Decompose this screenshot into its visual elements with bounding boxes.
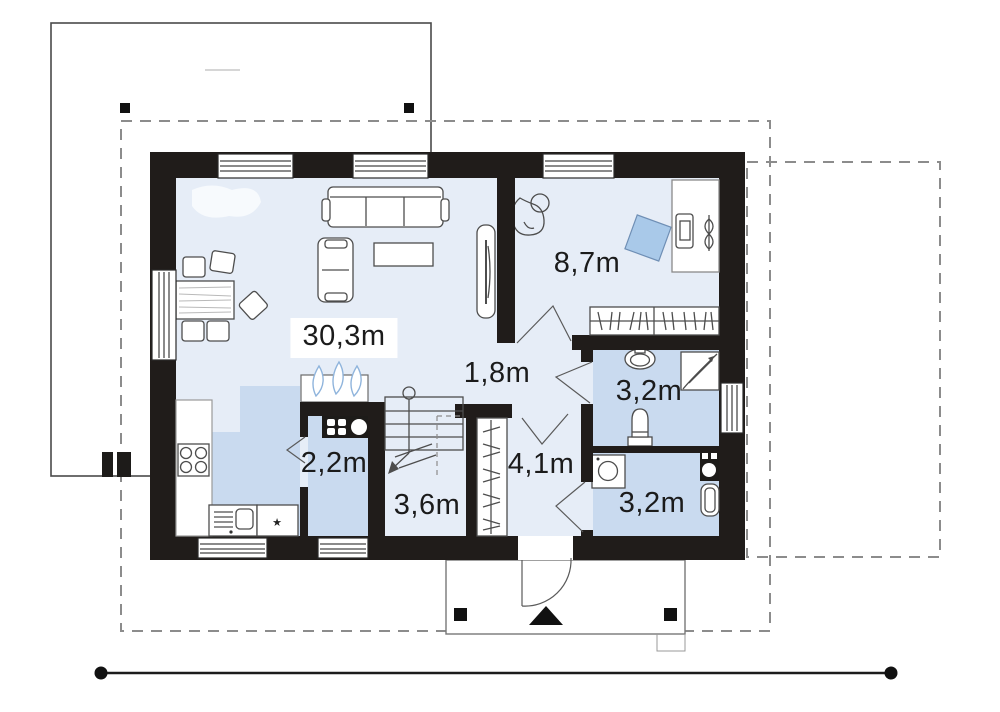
desk bbox=[672, 180, 719, 272]
hall-wardrobe bbox=[477, 418, 507, 536]
window bbox=[721, 383, 743, 433]
tv-cabinet bbox=[477, 225, 495, 318]
window bbox=[152, 270, 176, 360]
terrace-dashed-outline bbox=[747, 162, 940, 557]
room-label-bedroom: 8,7m bbox=[554, 249, 620, 278]
chair bbox=[207, 321, 229, 341]
chair bbox=[182, 321, 204, 341]
sofa bbox=[322, 187, 449, 227]
floor-plan-canvas: ★ bbox=[0, 0, 1000, 712]
porch-post bbox=[664, 608, 677, 621]
room-label-hall: 1,8m bbox=[464, 359, 530, 388]
entrance-opening bbox=[518, 536, 573, 560]
lounge-chair bbox=[318, 238, 353, 302]
window bbox=[318, 538, 368, 558]
water-heater bbox=[701, 484, 719, 516]
porch bbox=[446, 560, 685, 651]
star-icon: ★ bbox=[272, 517, 282, 529]
sink-unit bbox=[209, 505, 257, 536]
porch-post bbox=[454, 608, 467, 621]
pantry-stove-icon bbox=[322, 416, 372, 438]
window bbox=[218, 154, 293, 178]
room-label-bathroom-top: 3,2m bbox=[616, 377, 682, 406]
room-label-bathroom-bottom: 3,2m bbox=[619, 489, 685, 518]
base-cabinet: ★ bbox=[257, 505, 298, 536]
rug bbox=[192, 186, 261, 218]
bedroom-wardrobe bbox=[590, 307, 719, 335]
washbasin bbox=[625, 349, 655, 369]
chair bbox=[183, 257, 205, 277]
washing-machine bbox=[592, 455, 625, 488]
room-label-living: 30,3m bbox=[290, 318, 397, 358]
window bbox=[353, 154, 428, 178]
window bbox=[198, 538, 267, 558]
room-label-pantry: 2,2m bbox=[301, 449, 367, 478]
utility-sink bbox=[700, 450, 719, 481]
floor-plan-drawing: ★ bbox=[0, 0, 1000, 712]
porch-step bbox=[657, 634, 685, 651]
room-label-staircase: 3,6m bbox=[394, 491, 460, 520]
window bbox=[543, 154, 614, 178]
chair bbox=[210, 250, 236, 273]
room-label-entrance-hall: 4,1m bbox=[508, 450, 574, 479]
property-line bbox=[95, 667, 898, 680]
shower bbox=[681, 352, 719, 390]
coffee-table bbox=[374, 243, 433, 266]
